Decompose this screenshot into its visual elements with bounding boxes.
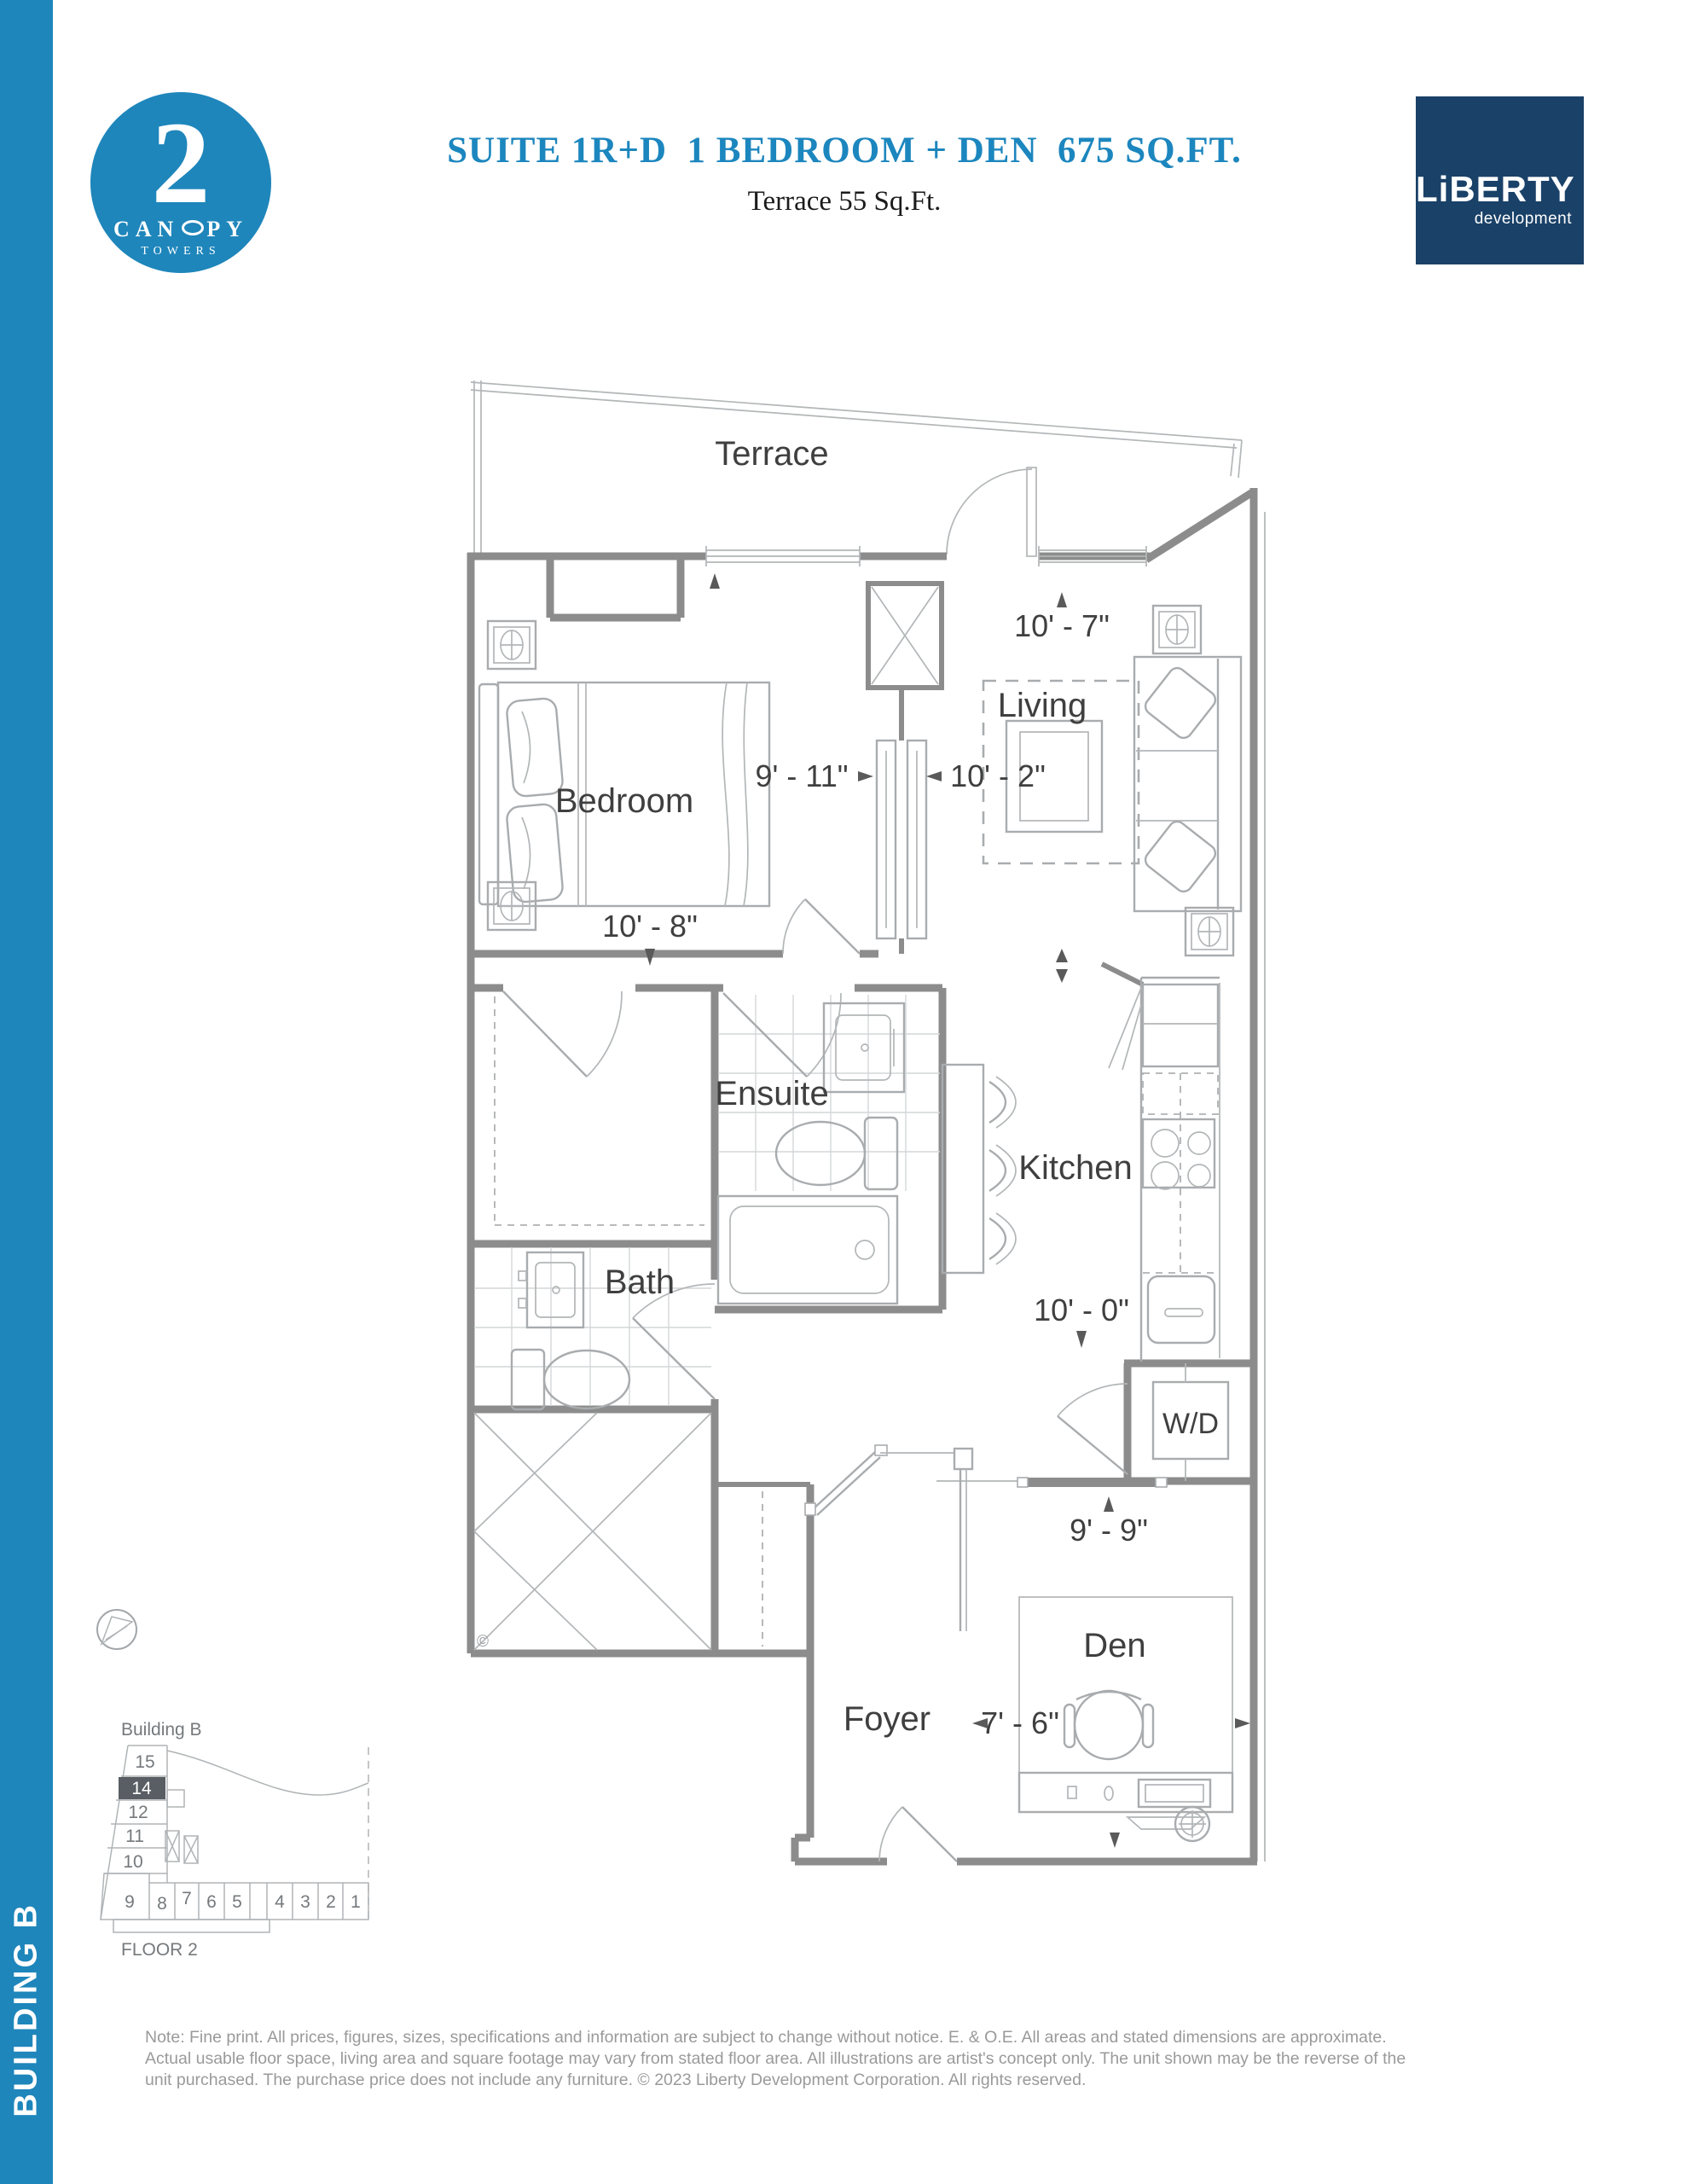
ceiling-fixture-icon bbox=[1153, 606, 1201, 653]
ceiling-fixture-icon bbox=[1186, 908, 1233, 955]
ceiling-fixture-icon bbox=[488, 621, 536, 669]
floorplan-page: { "sidebar": { "label": "BUILDING B" }, … bbox=[0, 0, 1687, 2184]
keyplan-unit: 1 bbox=[351, 1892, 361, 1912]
keyplan-unit-highlighted: 14 bbox=[131, 1779, 152, 1798]
note-line: Actual usable floor space, living area a… bbox=[145, 2048, 1578, 2070]
ensuite-room bbox=[718, 993, 940, 1304]
copyright-mark: © bbox=[477, 1633, 489, 1651]
room-label-wd: W/D bbox=[1162, 1408, 1219, 1440]
keyplan-building-label: Building B bbox=[121, 1720, 202, 1740]
svg-text:10' - 0": 10' - 0" bbox=[1034, 1292, 1129, 1327]
keyplan-unit: 8 bbox=[157, 1894, 167, 1914]
room-label-ensuite: Ensuite bbox=[715, 1075, 828, 1112]
foyer-area bbox=[805, 1445, 957, 1862]
keyplan-floor-label: FLOOR 2 bbox=[121, 1940, 198, 1960]
shower-xbox bbox=[474, 1413, 711, 1650]
bedroom-door bbox=[783, 899, 860, 954]
fine-print-note: Note: Fine print. All prices, figures, s… bbox=[145, 2027, 1578, 2091]
dimension-den-width: 9' - 9" bbox=[1070, 1496, 1148, 1548]
dimension-kitchen-length: 10' - 0" bbox=[1034, 1292, 1129, 1348]
room-label-bedroom: Bedroom bbox=[555, 782, 693, 820]
dimension-den-depth: 7' - 6" bbox=[972, 1705, 1250, 1740]
room-label-living: Living bbox=[998, 687, 1087, 724]
svg-text:10' - 8": 10' - 8" bbox=[602, 909, 698, 944]
keyplan-unit: 11 bbox=[125, 1827, 144, 1846]
keyplan-unit: 7 bbox=[182, 1889, 192, 1908]
svg-text:9' - 11": 9' - 11" bbox=[755, 758, 848, 793]
keyplan-unit: 9 bbox=[125, 1892, 135, 1912]
room-label-terrace: Terrace bbox=[715, 435, 828, 473]
keyplan-unit: 12 bbox=[128, 1803, 148, 1822]
keyplan-unit: 2 bbox=[326, 1892, 336, 1912]
svg-text:7' - 6": 7' - 6" bbox=[981, 1705, 1059, 1740]
bath-room bbox=[474, 1247, 715, 1409]
keyplan-unit: 3 bbox=[300, 1892, 310, 1912]
keyplan-unit: 6 bbox=[206, 1892, 217, 1912]
terrace-door bbox=[947, 468, 1036, 556]
note-line: Note: Fine print. All prices, figures, s… bbox=[145, 2027, 1578, 2048]
dimension-living-width: 10' - 7" bbox=[1014, 592, 1110, 643]
keyplan-unit: 10 bbox=[123, 1852, 142, 1872]
north-arrow-icon bbox=[97, 1610, 136, 1649]
room-label-foyer: Foyer bbox=[843, 1700, 930, 1738]
dimension-living-depth: 10' - 2" bbox=[926, 758, 1046, 793]
sliding-door-panels bbox=[877, 741, 926, 938]
keyplan-unit: 5 bbox=[232, 1892, 242, 1912]
shaft-box bbox=[868, 584, 942, 688]
room-label-den: Den bbox=[1083, 1627, 1145, 1664]
note-line: unit purchased. The purchase price does … bbox=[145, 2070, 1578, 2091]
dimension-markers bbox=[1056, 949, 1120, 1848]
svg-text:10' - 7": 10' - 7" bbox=[1014, 608, 1110, 643]
room-label-bath: Bath bbox=[605, 1263, 675, 1301]
dimension-bedroom-width: 9' - 11" bbox=[755, 758, 873, 793]
keyplan: Building B 15 14 12 11 10 9 8 7 6 5 4 3 … bbox=[101, 1720, 368, 1960]
den-sliding-door bbox=[936, 1478, 1167, 1487]
floor-plan-svg: Terrace bbox=[0, 0, 1687, 2184]
svg-text:10' - 2": 10' - 2" bbox=[950, 758, 1046, 793]
svg-text:9' - 9": 9' - 9" bbox=[1070, 1513, 1148, 1548]
keyplan-unit: 4 bbox=[275, 1892, 285, 1912]
terrace-railing bbox=[471, 380, 1242, 555]
walkin-closet bbox=[495, 991, 704, 1225]
keyplan-unit: 15 bbox=[135, 1752, 154, 1772]
room-label-kitchen: Kitchen bbox=[1018, 1149, 1132, 1187]
